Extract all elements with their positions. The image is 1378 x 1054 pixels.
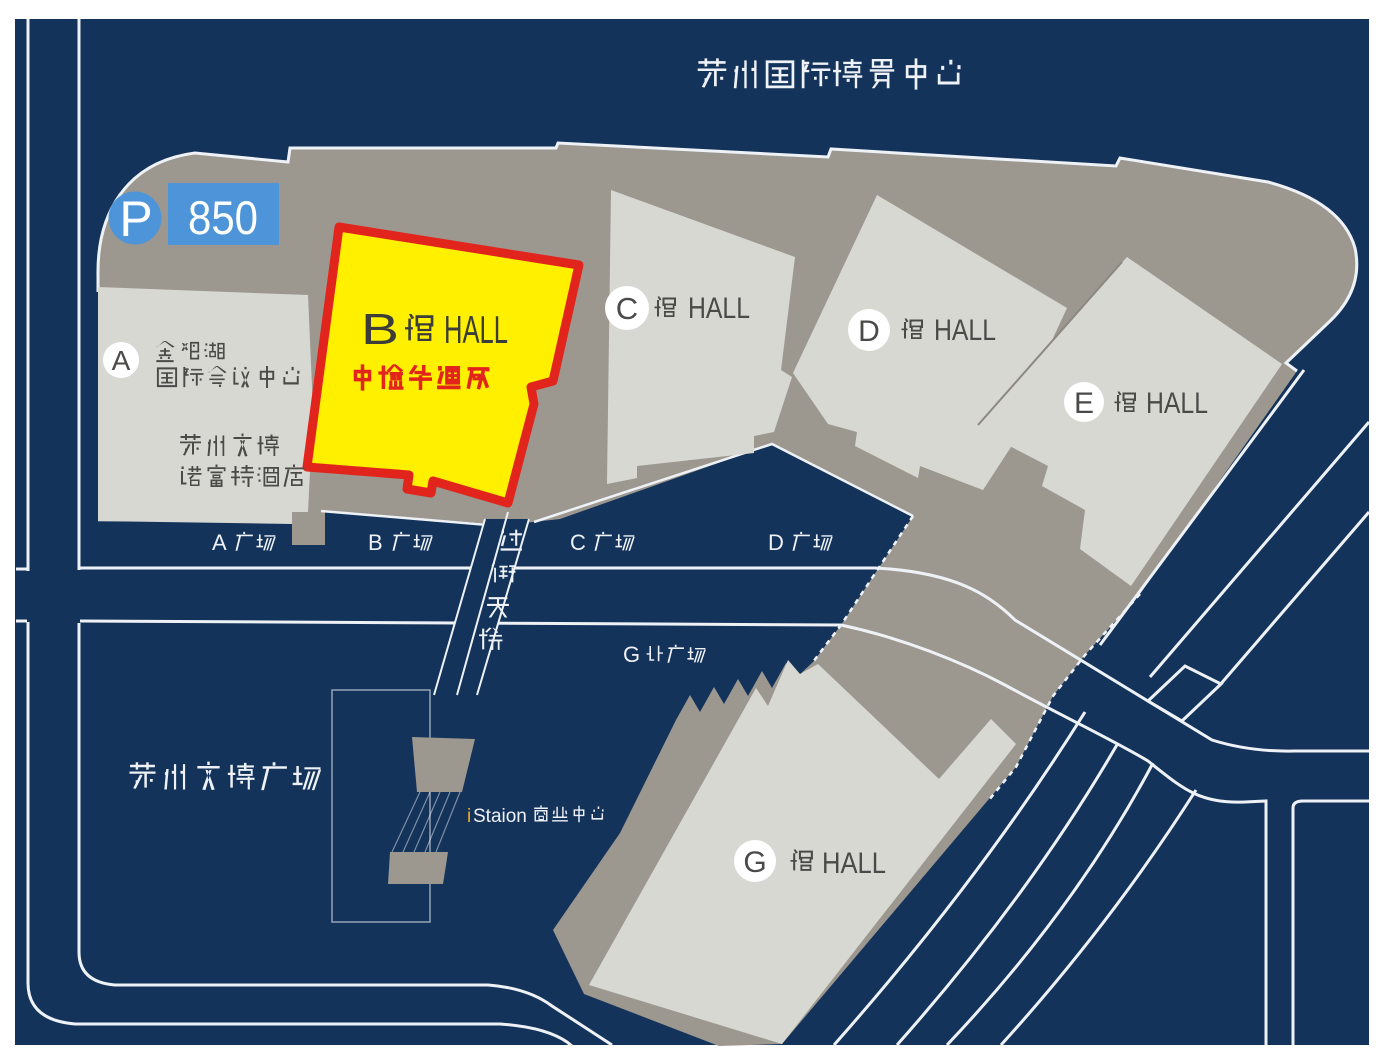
svg-text:850: 850 (188, 191, 258, 244)
svg-text:HALL: HALL (934, 314, 996, 347)
svg-text:P: P (119, 191, 152, 247)
svg-text:Staion: Staion (473, 806, 527, 827)
svg-text:E: E (1074, 387, 1094, 420)
svg-text:C: C (570, 530, 586, 555)
svg-text:HALL: HALL (688, 292, 750, 325)
svg-text:i: i (467, 806, 471, 827)
svg-text:B: B (361, 305, 399, 354)
svg-text:HALL: HALL (1146, 387, 1208, 420)
svg-text:C: C (616, 291, 638, 326)
svg-text:D: D (858, 315, 880, 348)
svg-text:G: G (743, 846, 766, 879)
svg-text:D: D (768, 530, 784, 555)
svg-text:G: G (623, 642, 640, 667)
svg-text:B: B (368, 530, 383, 555)
svg-text:A: A (112, 345, 131, 376)
svg-text:HALL: HALL (822, 847, 886, 880)
svg-text:HALL: HALL (444, 309, 508, 352)
svg-text:A: A (212, 530, 227, 555)
